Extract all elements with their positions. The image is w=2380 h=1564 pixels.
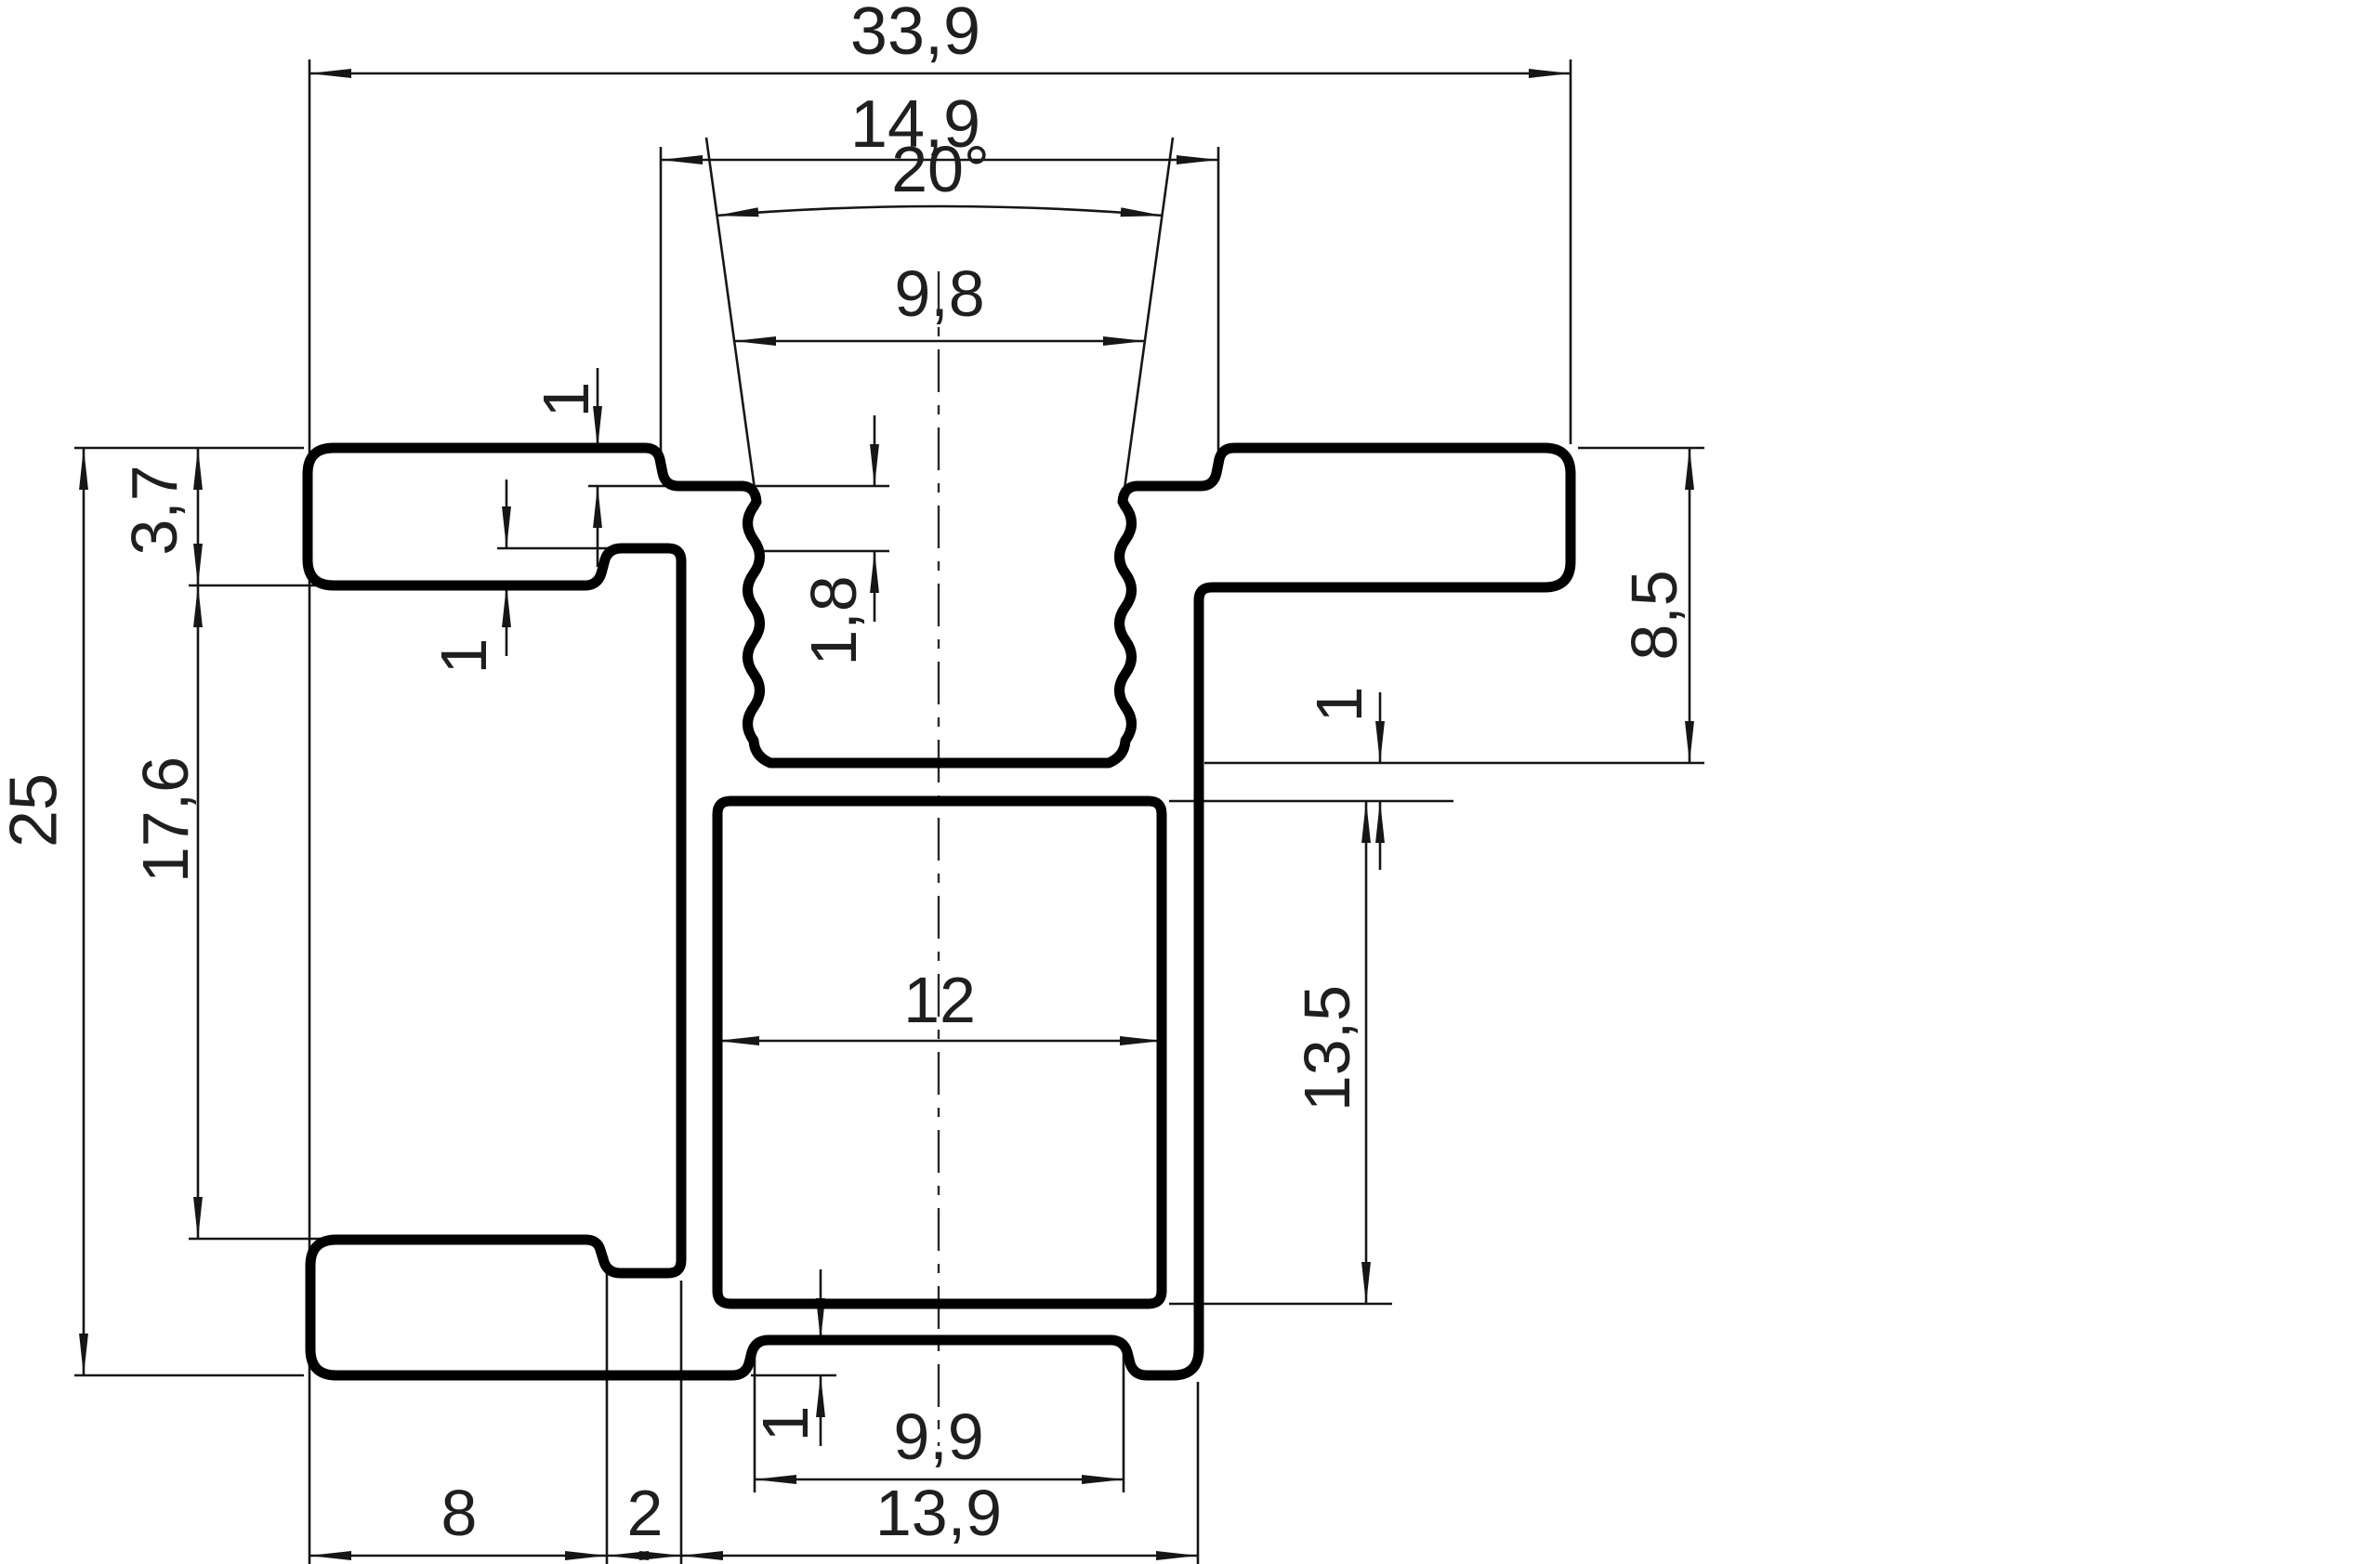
- dim-foot-width-label: 8: [441, 1477, 478, 1549]
- dim-top-wall-label: 1: [1303, 687, 1375, 723]
- dim-base-width-label: 13,9: [875, 1477, 1002, 1549]
- dim-side-height-label: 17,6: [129, 756, 202, 883]
- dim-overall-width-label: 33,9: [850, 0, 980, 69]
- dimension-labels: 33,9 14,9 20° 9,8 1 3,7 1 1,8 25 17,6 8,…: [0, 0, 1690, 1549]
- dim-top-step-label: 1: [530, 382, 602, 418]
- dimension-lines: [84, 73, 1690, 1556]
- dim-thread-angle-label: 20°: [891, 133, 990, 205]
- technical-drawing-svg: 33,9 14,9 20° 9,8 1 3,7 1 1,8 25 17,6 8,…: [0, 0, 2380, 1564]
- dim-arm-thickness-label: 3,7: [118, 465, 191, 555]
- dim-foot-step-label: 1: [749, 1406, 822, 1442]
- angle-arc: [717, 206, 1163, 216]
- dim-arm-notch-label: 1: [427, 638, 500, 675]
- dim-tab-width-label: 9,9: [893, 1400, 983, 1473]
- dim-overall-height-label: 25: [0, 773, 71, 848]
- dim-thread-lead-label: 1,8: [797, 575, 870, 665]
- dim-leg-offset-label: 2: [627, 1477, 664, 1549]
- dim-cavity-height-label: 13,5: [1291, 985, 1363, 1111]
- dim-channel-depth-label: 8,5: [1618, 570, 1690, 660]
- drawing-canvas: 33,9 14,9 20° 9,8 1 3,7 1 1,8 25 17,6 8,…: [0, 0, 2380, 1564]
